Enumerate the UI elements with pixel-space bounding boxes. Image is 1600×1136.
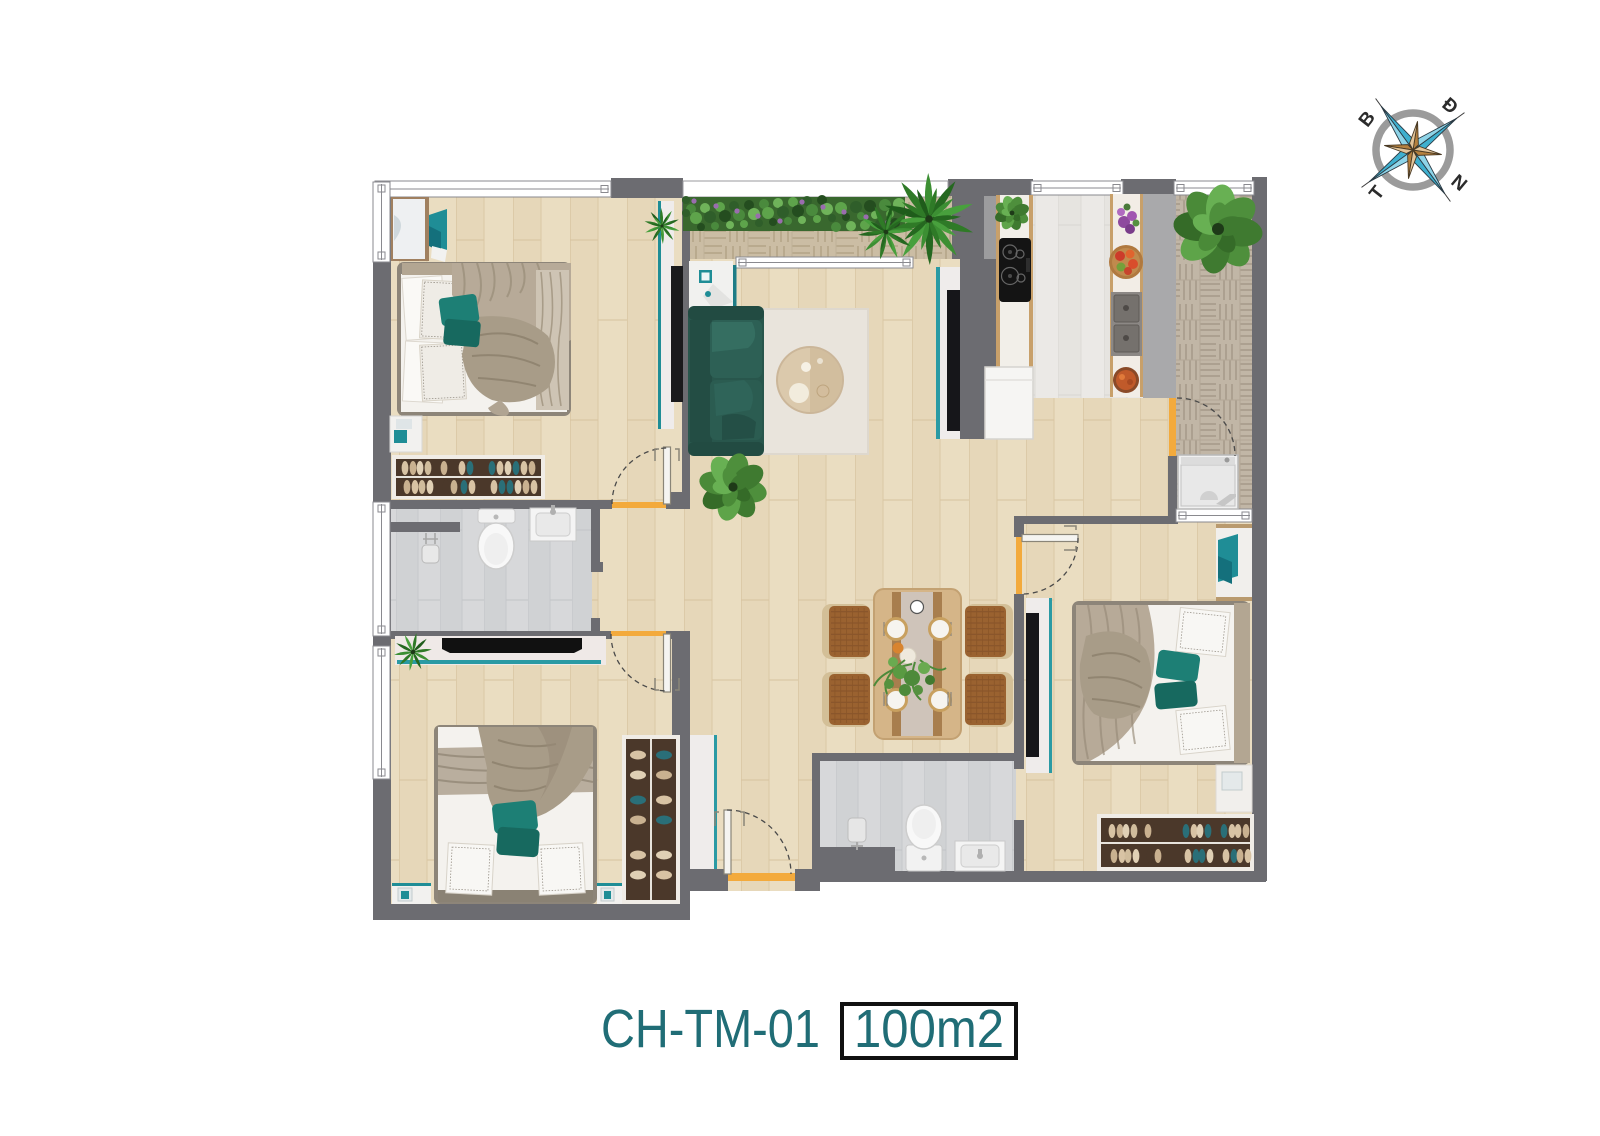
svg-text:CH-TM-01: CH-TM-01	[601, 999, 820, 1059]
svg-text:N: N	[1447, 171, 1471, 196]
svg-text:Đ: Đ	[1438, 94, 1462, 119]
svg-text:100m2: 100m2	[854, 999, 1004, 1059]
svg-text:T: T	[1366, 182, 1390, 204]
svg-text:B: B	[1355, 107, 1380, 131]
